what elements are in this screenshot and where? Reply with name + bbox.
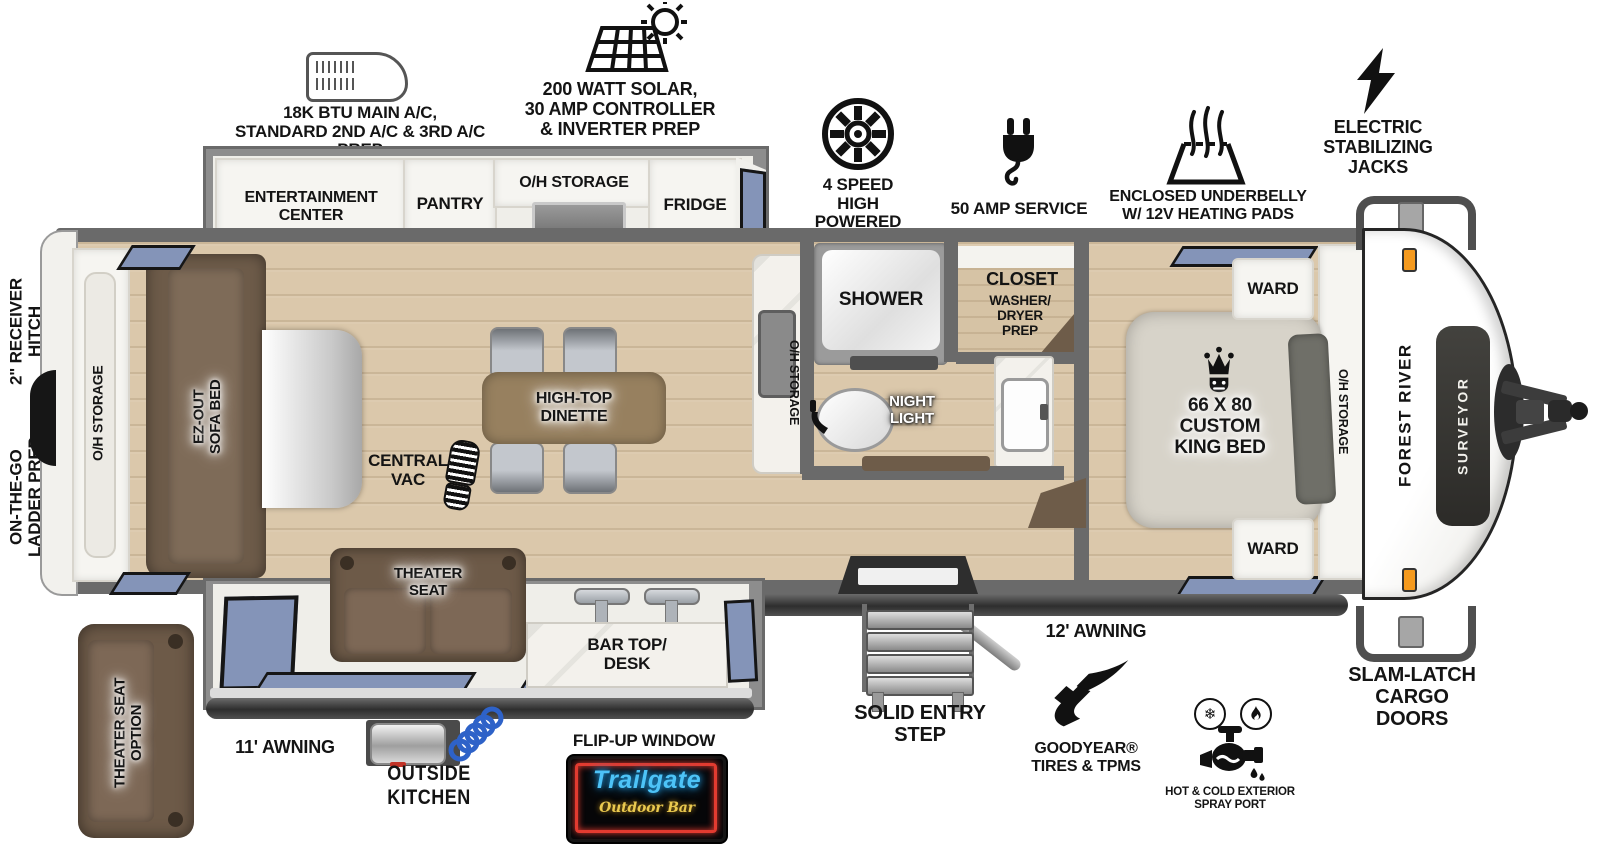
coupler-ball: [1570, 402, 1588, 420]
forest-river-logo: FOREST RIVER: [1390, 308, 1422, 522]
pullout-mattress: [262, 330, 362, 508]
rear-hitch-receiver: [30, 370, 56, 466]
bath-fan-icon: [820, 96, 896, 172]
crown-icon: [1202, 346, 1236, 394]
theater-seat-label: THEATER SEAT: [368, 566, 488, 599]
coiled-hose: [446, 706, 504, 766]
solar-label: 200 WATT SOLAR, 30 AMP CONTROLLER & INVE…: [520, 80, 720, 139]
wardrobe-bottom: WARD: [1232, 518, 1314, 580]
awning-12-label: 12' AWNING: [1040, 622, 1152, 642]
shower-ledge: [850, 356, 938, 370]
floorplan-diagram: 18K BTU MAIN A/C, STANDARD 2ND A/C & 3RD…: [0, 0, 1600, 844]
aframe-cross: [1516, 400, 1544, 424]
spray-port-label: HOT & COLD EXTERIOR SPRAY PORT: [1150, 786, 1310, 811]
outside-kitchen-label: OUTSIDE KITCHEN: [344, 762, 514, 810]
power-plug-icon: [994, 116, 1044, 196]
surveyor-logo: SURVEYOR: [1448, 336, 1478, 516]
trailgate-sign-subtitle: Outdoor Bar: [585, 801, 709, 816]
cupholder: [168, 634, 183, 649]
stab-jack-latch-bottom: [1398, 616, 1424, 648]
bath-closet-wall: [944, 238, 958, 362]
solar-panel-icon: [578, 2, 688, 80]
bath-bench: [862, 456, 990, 471]
dinette-chair: [563, 442, 617, 494]
dinette-table: HIGH-TOP DINETTE: [482, 372, 666, 444]
coupler: [1548, 400, 1572, 422]
night-light-label: NIGHT LIGHT: [874, 394, 950, 427]
flip-window-label: FLIP-UP WINDOW: [572, 732, 716, 751]
amp-service-label: 50 AMP SERVICE: [938, 200, 1100, 219]
outside-kitchen-griddle: [370, 723, 446, 765]
slideout-window-right: [724, 599, 758, 682]
bedroom-wall: [1074, 238, 1089, 592]
shower: SHOWER: [822, 250, 940, 350]
bath-wall-left: [800, 240, 814, 474]
marker-light-top: [1402, 248, 1417, 272]
cupholder: [168, 812, 183, 827]
trailgate-sign: Trailgate Outdoor Bar: [568, 756, 726, 842]
cupholder: [340, 556, 354, 570]
king-bed-label: 66 X 80 CUSTOM KING BED: [1152, 396, 1288, 459]
bar-top-desk: BAR TOP/ DESK: [526, 622, 728, 688]
entry-steps: [862, 604, 974, 710]
goodyear-label: GOODYEAR® TIRES & TPMS: [1016, 740, 1156, 775]
slam-latch-label: SLAM-LATCH CARGO DOORS: [1338, 664, 1486, 730]
wardrobe-top: WARD: [1232, 258, 1314, 320]
underbelly-label: ENCLOSED UNDERBELLY W/ 12V HEATING PADS: [1108, 188, 1308, 223]
closet-label: CLOSET: [962, 270, 1082, 290]
underbelly-icon: [1158, 98, 1252, 186]
central-vac-label: CENTRAL VAC: [362, 452, 454, 489]
toilet-sprayer-icon: [808, 398, 830, 438]
spray-port-icon: [1198, 724, 1268, 784]
marker-light-bottom: [1402, 568, 1417, 592]
entry-step-label: SOLID ENTRY STEP: [842, 702, 998, 746]
cupholder: [502, 556, 516, 570]
sofa-label: EZ-OUT SOFA BED: [186, 332, 230, 502]
rear-oh-storage-label: O/H STORAGE: [84, 330, 112, 496]
entry-door-sill: [858, 568, 958, 585]
vanity-faucet: [1040, 404, 1048, 420]
dinette-chair: [490, 442, 544, 494]
stab-jacks-label: ELECTRIC STABILIZING JACKS: [1318, 118, 1438, 177]
kitchen-oh-storage: O/H STORAGE: [493, 158, 655, 208]
window-rear-bottom: [109, 572, 191, 595]
washer-dryer-label: WASHER/ DRYER PREP: [968, 294, 1072, 339]
slideout-sill: [210, 688, 752, 698]
goodyear-wingfoot-icon: [1044, 658, 1130, 738]
trailgate-sign-title: Trailgate: [577, 767, 717, 795]
lightning-bolt-icon: [1352, 48, 1400, 114]
ac-unit-icon: [306, 52, 406, 100]
awning-11-label: 11' AWNING: [230, 738, 340, 758]
awning-rail-main: [742, 594, 1348, 616]
theater-seat-option-label: THEATER SEAT OPTION: [96, 660, 162, 806]
